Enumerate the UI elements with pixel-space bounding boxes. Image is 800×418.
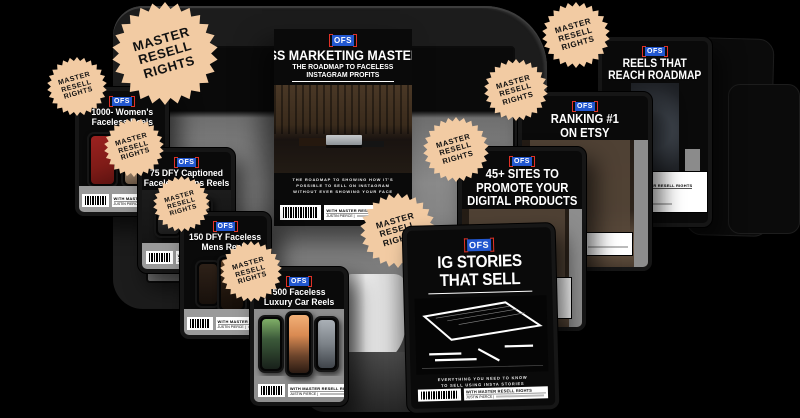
barcode <box>82 194 108 207</box>
cover-title: RANKING #1ON ETSY <box>551 113 619 140</box>
cover-title: REELS THATREACH ROADMAP <box>608 58 701 83</box>
resell-rights-box: WITH MASTER RESELL RIGHTS JUSTIN PIERCE … <box>464 386 548 400</box>
tablet-back <box>728 84 800 234</box>
ofs-logo: OFS <box>464 239 494 252</box>
master-resell-rights-badge: MASTERRESELLRIGHTS <box>220 241 282 302</box>
gray-side-strip <box>634 140 648 267</box>
phone-mockup-sunset-car <box>285 311 314 377</box>
phone-mockup-forest-car <box>258 315 284 373</box>
phone-mockup-gray-cars <box>314 316 339 372</box>
ofs-logo: OFS <box>509 157 535 166</box>
product-mockup-collage: OFS FACELESS MARKETING MASTERCLASS: THE … <box>0 0 800 418</box>
barcode <box>280 205 322 220</box>
master-resell-rights-badge: MASTERRESELLRIGHTS <box>542 2 610 68</box>
cover-footer: WITH MASTER RESELL RIGHTS JUSTIN PIERCE … <box>258 384 341 397</box>
divider <box>428 290 532 294</box>
master-resell-rights-badge: MASTERRESELLRIGHTS <box>112 2 218 105</box>
master-resell-rights-badge: MASTERRESELLRIGHTS <box>47 57 107 116</box>
ofs-logo: OFS <box>174 158 200 167</box>
ofs-logo: OFS <box>329 35 357 46</box>
ofs-logo: OFS <box>286 277 312 286</box>
office-photo <box>274 85 412 173</box>
divider <box>292 81 394 82</box>
monitor-stand <box>344 274 406 362</box>
cover-title: IG STORIESTHAT SELL <box>437 252 523 291</box>
cover-title: FACELESS MARKETING MASTERCLASS: <box>274 49 412 63</box>
ofs-logo: OFS <box>642 47 668 56</box>
neon-lines-photo <box>414 295 548 374</box>
master-resell-rights-badge: MASTERRESELLRIGHTS <box>423 117 489 182</box>
master-resell-rights-badge: MASTERRESELLRIGHTS <box>104 118 164 177</box>
cover-photo-band: WITH MASTER RESELL RIGHTS JUSTIN PIERCE … <box>254 309 344 403</box>
cover-footer: WITH MASTER RESELL RIGHTS JUSTIN PIERCE … <box>418 386 548 401</box>
ofs-logo: OFS <box>572 102 598 111</box>
tablet-ig-stories-that-sell: OFS IG STORIESTHAT SELL EVERYTHING YOU N… <box>402 222 561 414</box>
ofs-logo: OFS <box>213 222 239 231</box>
barcode <box>187 317 212 330</box>
master-resell-rights-badge: MASTERRESELLRIGHTS <box>484 59 548 121</box>
barcode <box>258 384 285 397</box>
barcode <box>418 389 461 402</box>
cover-subtitle: THE ROADMAP TO FACELESS INSTAGRAM PROFIT… <box>293 63 394 80</box>
resell-rights-box: WITH MASTER RESELL RIGHTS JUSTIN PIERCE … <box>288 384 344 397</box>
barcode <box>146 251 173 264</box>
master-resell-rights-badge: MASTERRESELLRIGHTS <box>153 176 210 232</box>
